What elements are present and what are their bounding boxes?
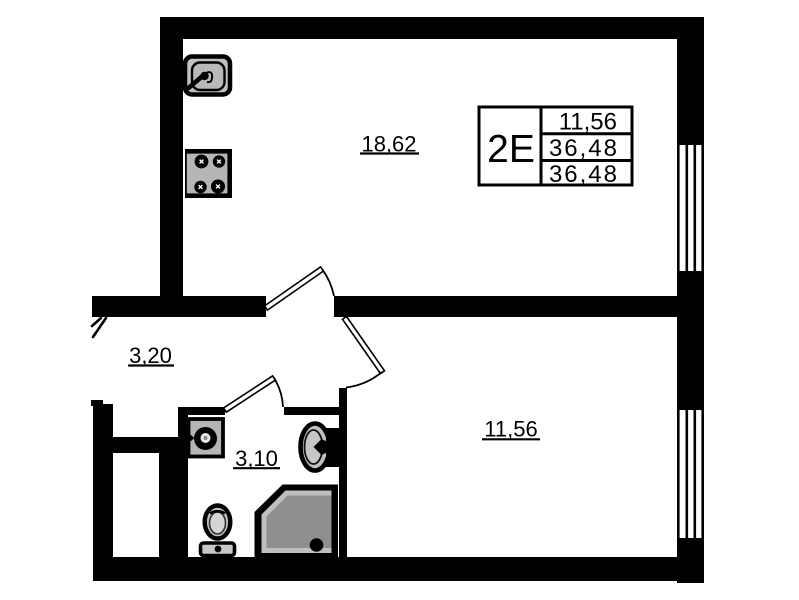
svg-text:3,20: 3,20: [129, 343, 172, 368]
svg-text:36,48: 36,48: [549, 135, 619, 162]
svg-text:2E: 2E: [487, 128, 535, 171]
svg-text:11,56: 11,56: [484, 417, 537, 442]
svg-text:11,56: 11,56: [559, 109, 617, 136]
svg-text:36,48: 36,48: [549, 161, 619, 188]
